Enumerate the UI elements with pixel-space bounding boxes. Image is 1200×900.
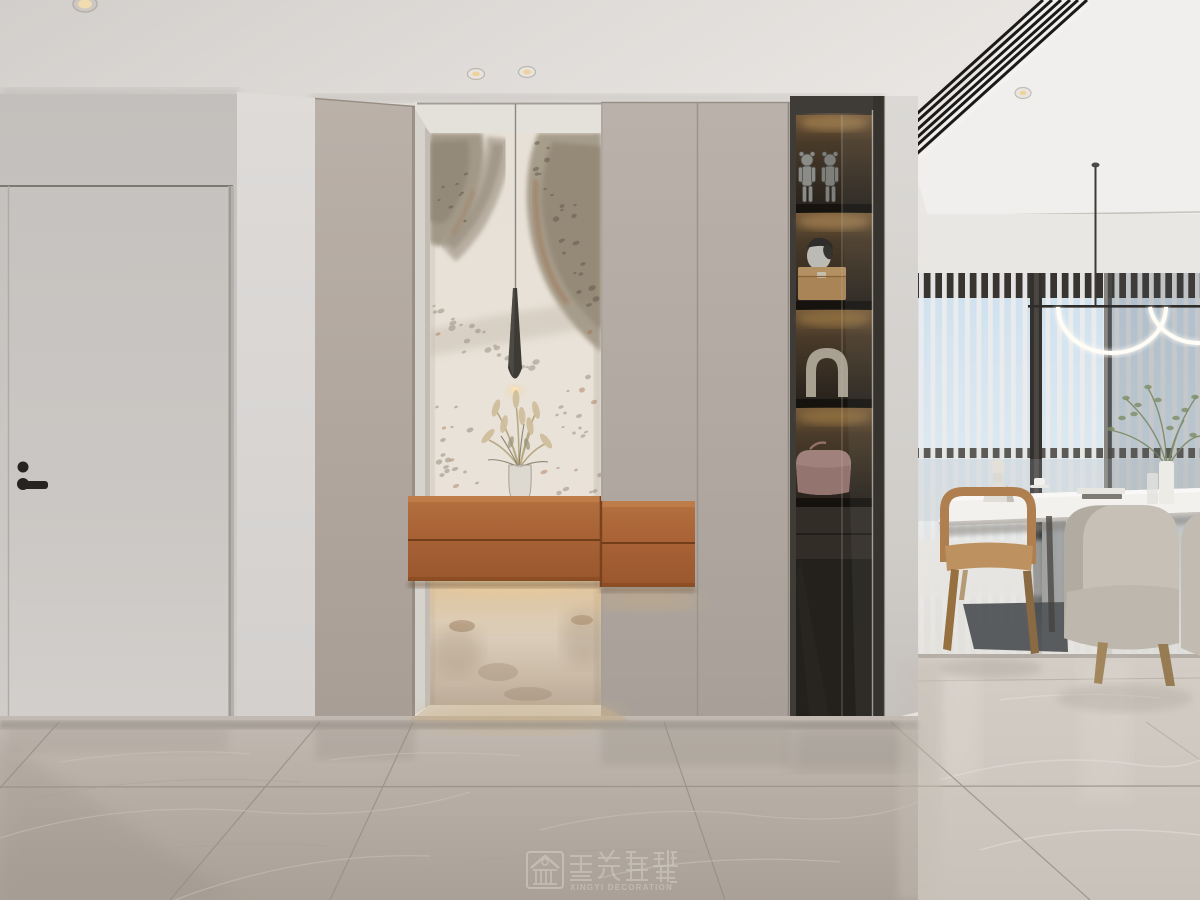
svg-text:XINGYI DECORATION: XINGYI DECORATION: [570, 883, 673, 892]
